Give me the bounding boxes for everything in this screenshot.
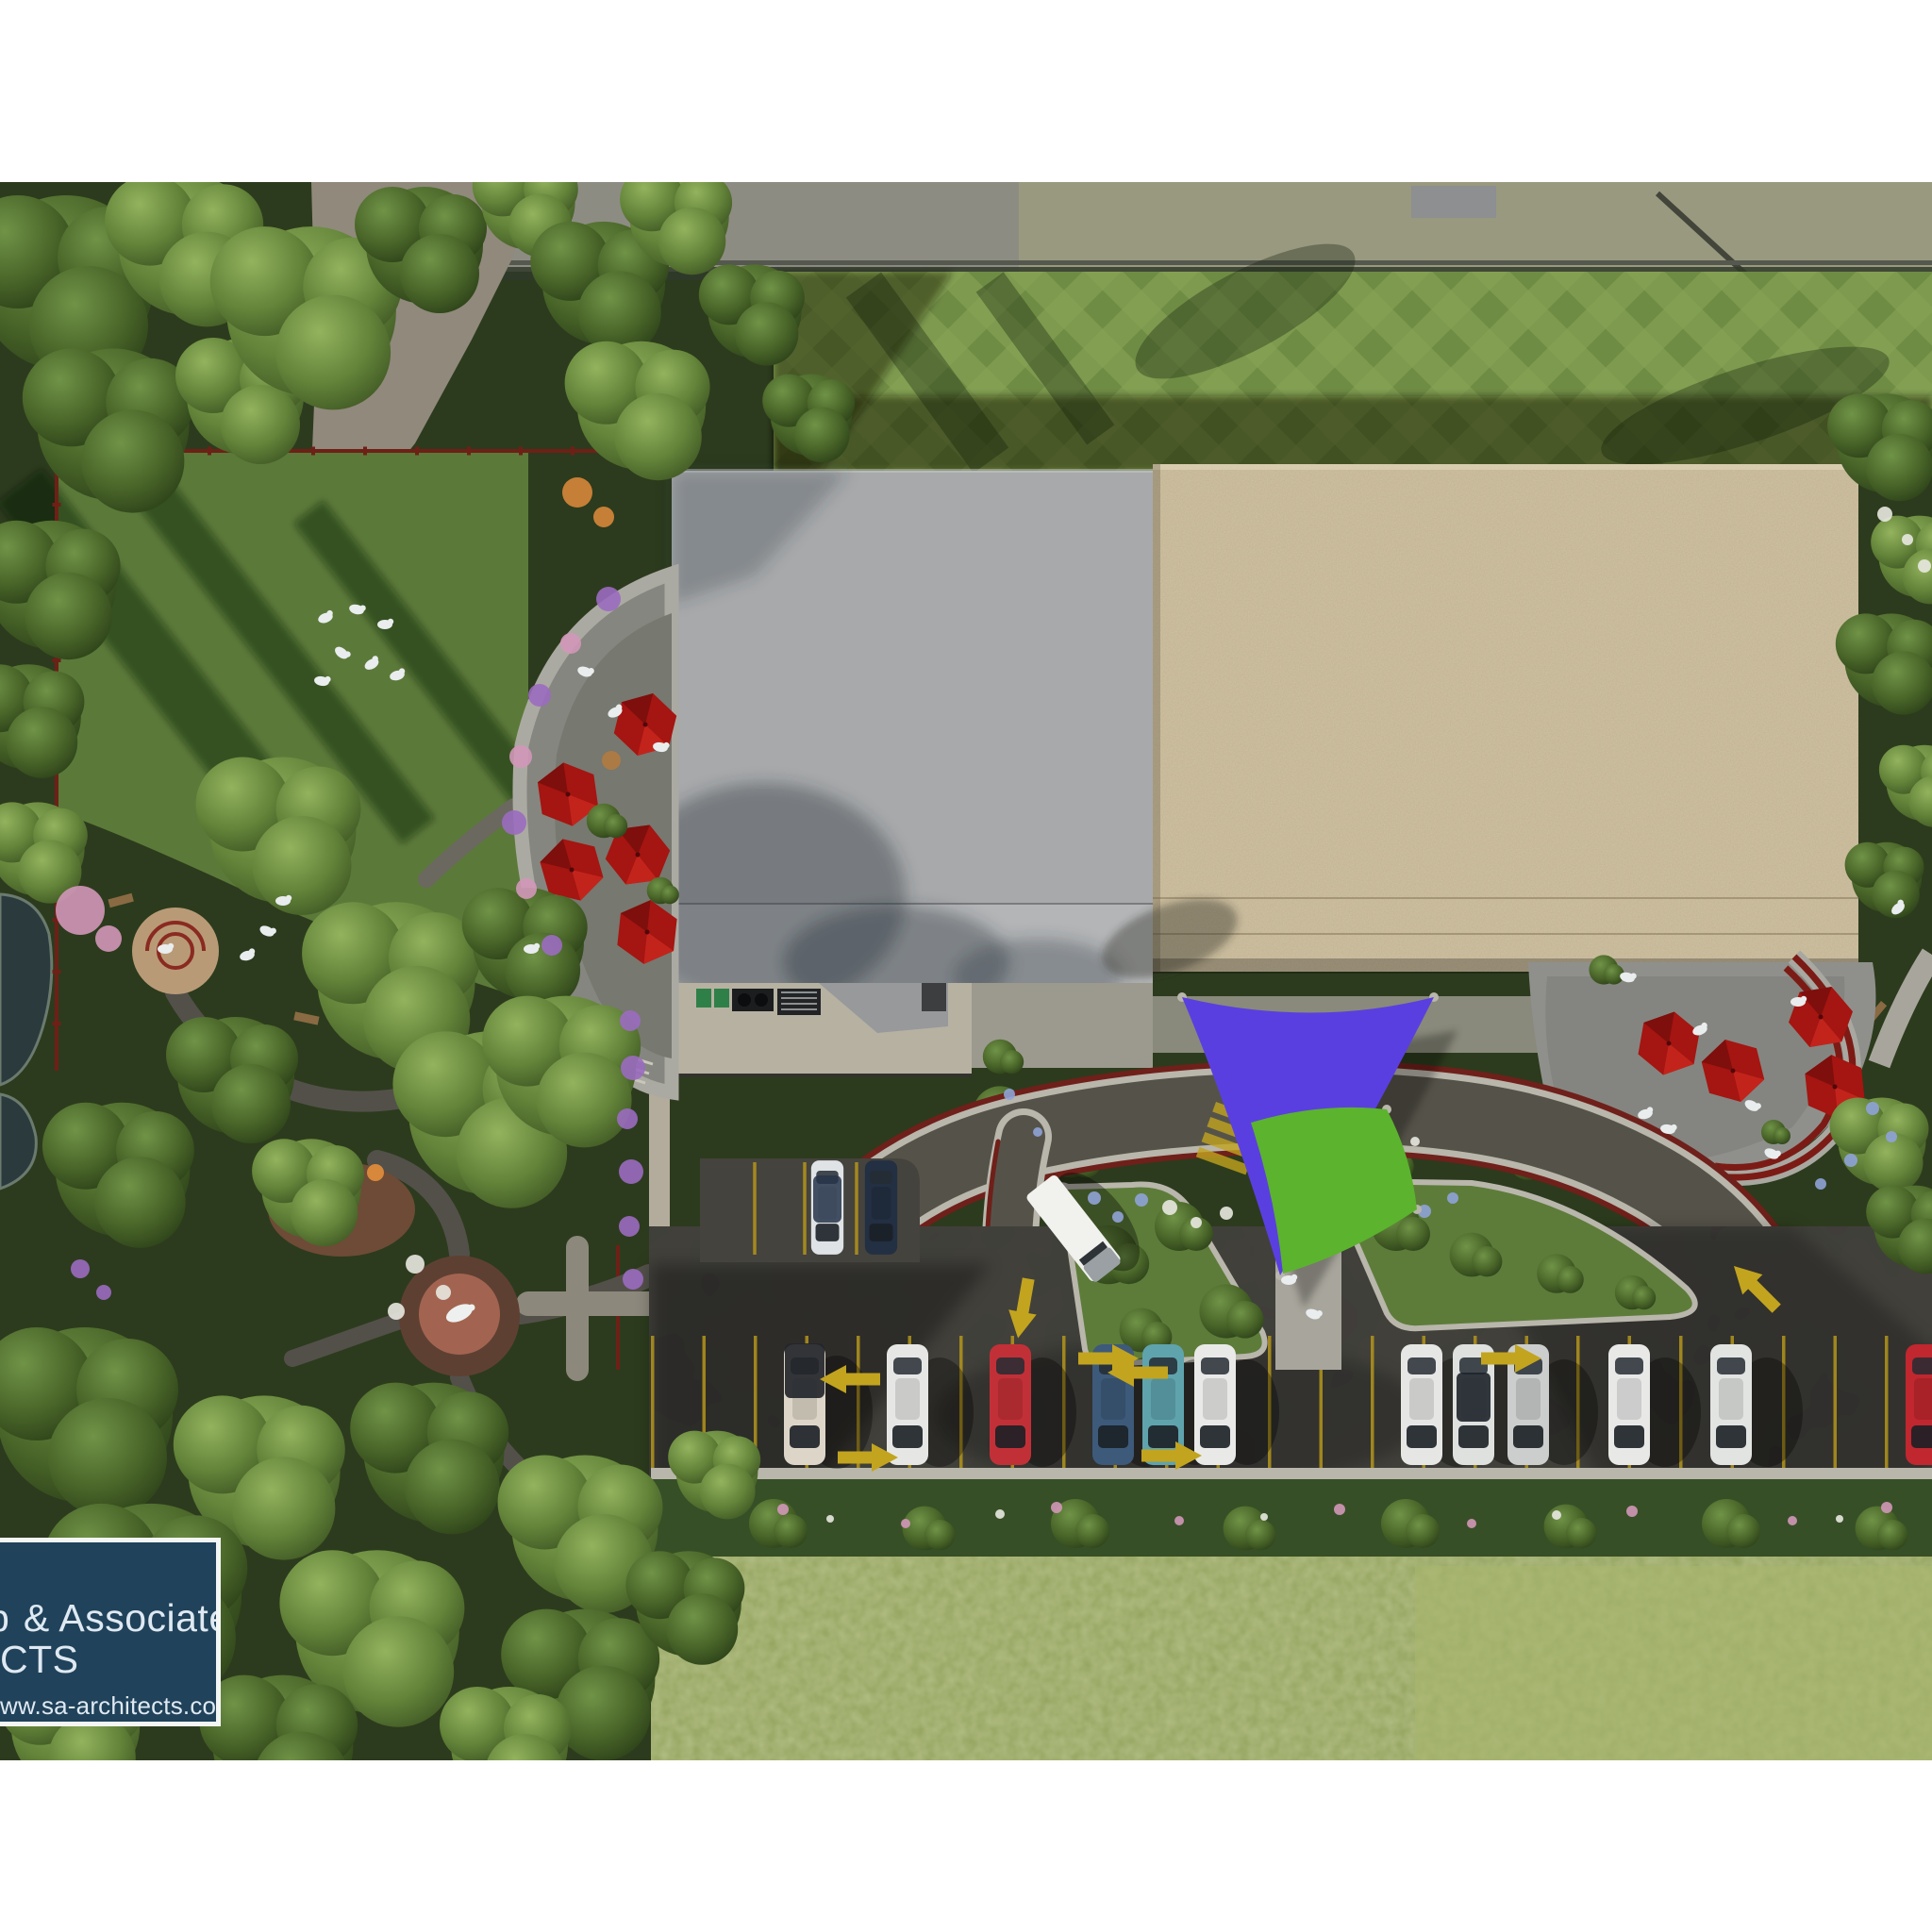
site-plan-canvas bbox=[0, 182, 1932, 1760]
beige-gravel-roof bbox=[1153, 464, 1858, 972]
car-white bbox=[1710, 1344, 1752, 1465]
architect-logo-text: b & Associates CTS ww.sa-architects.com bbox=[0, 1597, 208, 1719]
car-white bbox=[1608, 1344, 1650, 1465]
rooftop-unit bbox=[922, 983, 946, 1011]
aerial-site-rendering bbox=[0, 182, 1932, 1760]
car-red bbox=[990, 1344, 1031, 1465]
car-white bbox=[887, 1344, 928, 1465]
tree-icon bbox=[199, 1675, 358, 1760]
page: { "logo": { "line1_partial": "b", "line1… bbox=[0, 0, 1932, 1932]
pad-car-glass bbox=[813, 1175, 841, 1223]
building-roofs bbox=[623, 464, 1858, 1019]
car-white bbox=[1401, 1344, 1442, 1465]
logo-website: ww.sa-architects.com bbox=[0, 1692, 208, 1719]
logo-line-1: b & Associates bbox=[0, 1597, 208, 1639]
cafe-table bbox=[602, 751, 621, 770]
sand-circle-plaza bbox=[132, 908, 219, 994]
logo-line-2: CTS bbox=[0, 1639, 208, 1680]
car-red-edge bbox=[1906, 1344, 1932, 1465]
tree-icon bbox=[440, 1687, 572, 1760]
utility-slab bbox=[1411, 186, 1496, 218]
pickup-canopy bbox=[785, 1343, 824, 1398]
tree-icon bbox=[0, 521, 121, 659]
dumpster-icon bbox=[696, 989, 711, 1008]
dumpster-icon bbox=[714, 989, 729, 1008]
south-curb bbox=[651, 1468, 1932, 1481]
tree-icon bbox=[0, 664, 84, 778]
architect-logo-card: b & Associates CTS ww.sa-architects.com bbox=[0, 1538, 221, 1726]
car-white bbox=[1194, 1344, 1236, 1465]
logo-partial-letter: b bbox=[0, 1597, 12, 1639]
meadow-light-corner bbox=[1415, 1566, 1932, 1760]
car-navy-pad bbox=[865, 1160, 897, 1255]
dark-roof bbox=[1457, 1373, 1491, 1422]
